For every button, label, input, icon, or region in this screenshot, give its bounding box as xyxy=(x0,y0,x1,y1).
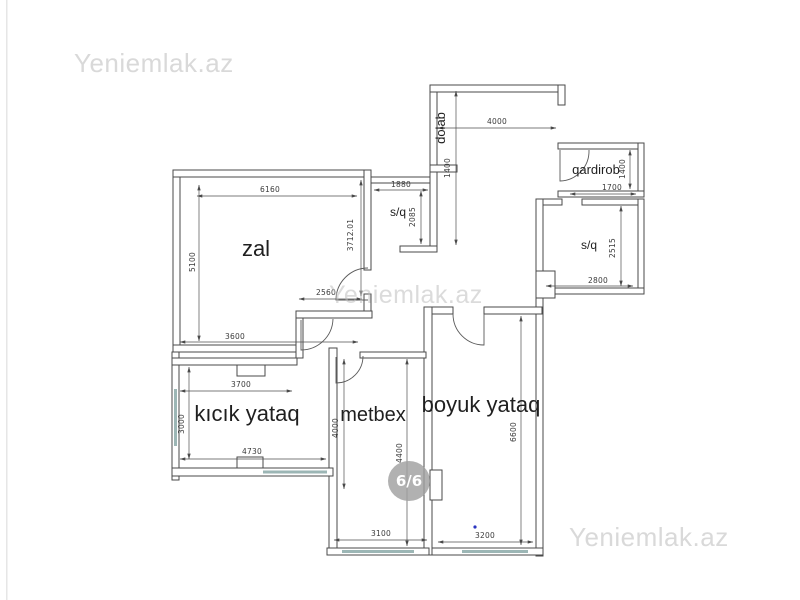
photo-count-badge: 6/6 xyxy=(388,461,430,501)
wall-metbex-top xyxy=(360,352,426,358)
dimension-label: 2085 xyxy=(408,207,417,227)
room-label-metbex: metbex xyxy=(340,404,406,426)
wall-zal-top xyxy=(173,170,371,177)
wall-sq-bottom xyxy=(400,246,437,252)
watermark-bottom-right: Yeniemlak.az xyxy=(569,522,729,552)
dimension-label: 3700 xyxy=(231,380,251,389)
dimension-label: 2515 xyxy=(608,238,617,258)
dimension-label: 1700 xyxy=(602,183,622,192)
wall-qardirob-top xyxy=(558,143,644,149)
room-label-boyuk-yataq: boyuk yataq xyxy=(422,392,541,417)
dimension-label: 4400 xyxy=(395,443,404,463)
wall-toproom-right-stub xyxy=(558,85,565,105)
room-label-zal: zal xyxy=(242,236,270,261)
room-label-sq-right: s/q xyxy=(581,238,597,252)
wall-sq2-right xyxy=(638,199,644,294)
wall-hall-south xyxy=(296,311,372,318)
dimension-label: 1880 xyxy=(391,180,411,189)
door-boyuk-yataq xyxy=(453,314,484,345)
dimension-label: 3712.01 xyxy=(346,219,355,251)
doors xyxy=(301,150,589,383)
dimension-label: 1400 xyxy=(443,158,452,178)
room-label-sq-top: s/q xyxy=(390,205,406,219)
room-label-kicik-yataq: kıcık yataq xyxy=(194,401,299,426)
dimension-label: 4000 xyxy=(331,418,340,438)
wall-hall-step xyxy=(296,313,303,358)
badge-label: 6/6 xyxy=(396,472,422,490)
wall-shaft-boyuk xyxy=(430,470,442,500)
watermark-center: Yeniemlak.az xyxy=(329,281,483,309)
photo-edge-line xyxy=(6,0,8,600)
dimension-label: 6600 xyxy=(509,422,518,442)
floor-plan-image: Yeniemlak.az xyxy=(0,0,800,600)
wall-kicik-notch-top xyxy=(237,365,265,376)
dimension-label: 3100 xyxy=(371,529,391,538)
wall-boyuk-top-right xyxy=(484,307,542,314)
blue-dot xyxy=(473,525,476,528)
wall-zal-bottom xyxy=(173,345,303,352)
dimension-label: 2800 xyxy=(588,276,608,285)
floor-plan: Yeniemlak.az xyxy=(0,0,800,600)
door-metbex xyxy=(336,356,363,383)
wall-shaft-sq2 xyxy=(536,271,555,298)
watermark-top-left: Yeniemlak.az xyxy=(74,48,234,78)
room-label-dolab: dolab xyxy=(433,112,448,144)
dimension-label: 4730 xyxy=(242,447,262,456)
door-kicik-yataq xyxy=(301,319,333,350)
wall-sq2-top-right xyxy=(582,199,644,205)
wall-qardirob-right xyxy=(638,143,644,193)
dimension-label: 6160 xyxy=(260,185,280,194)
dimension-label: 3600 xyxy=(225,332,245,341)
wall-zal-right-upper xyxy=(364,170,371,270)
wall-toproom-top xyxy=(430,85,565,92)
dimension-label: 3200 xyxy=(475,531,495,540)
dimension-label: 3000 xyxy=(177,414,186,434)
wall-zal-left xyxy=(173,170,180,352)
dimension-label: 5100 xyxy=(188,252,197,272)
wall-kicik-top xyxy=(172,358,297,365)
dimension-label: 4000 xyxy=(487,117,507,126)
wall-metbex-boyuk-divider xyxy=(424,307,432,555)
wall-hall-right xyxy=(536,199,543,556)
room-label-qardirob: qardirob xyxy=(572,162,620,177)
